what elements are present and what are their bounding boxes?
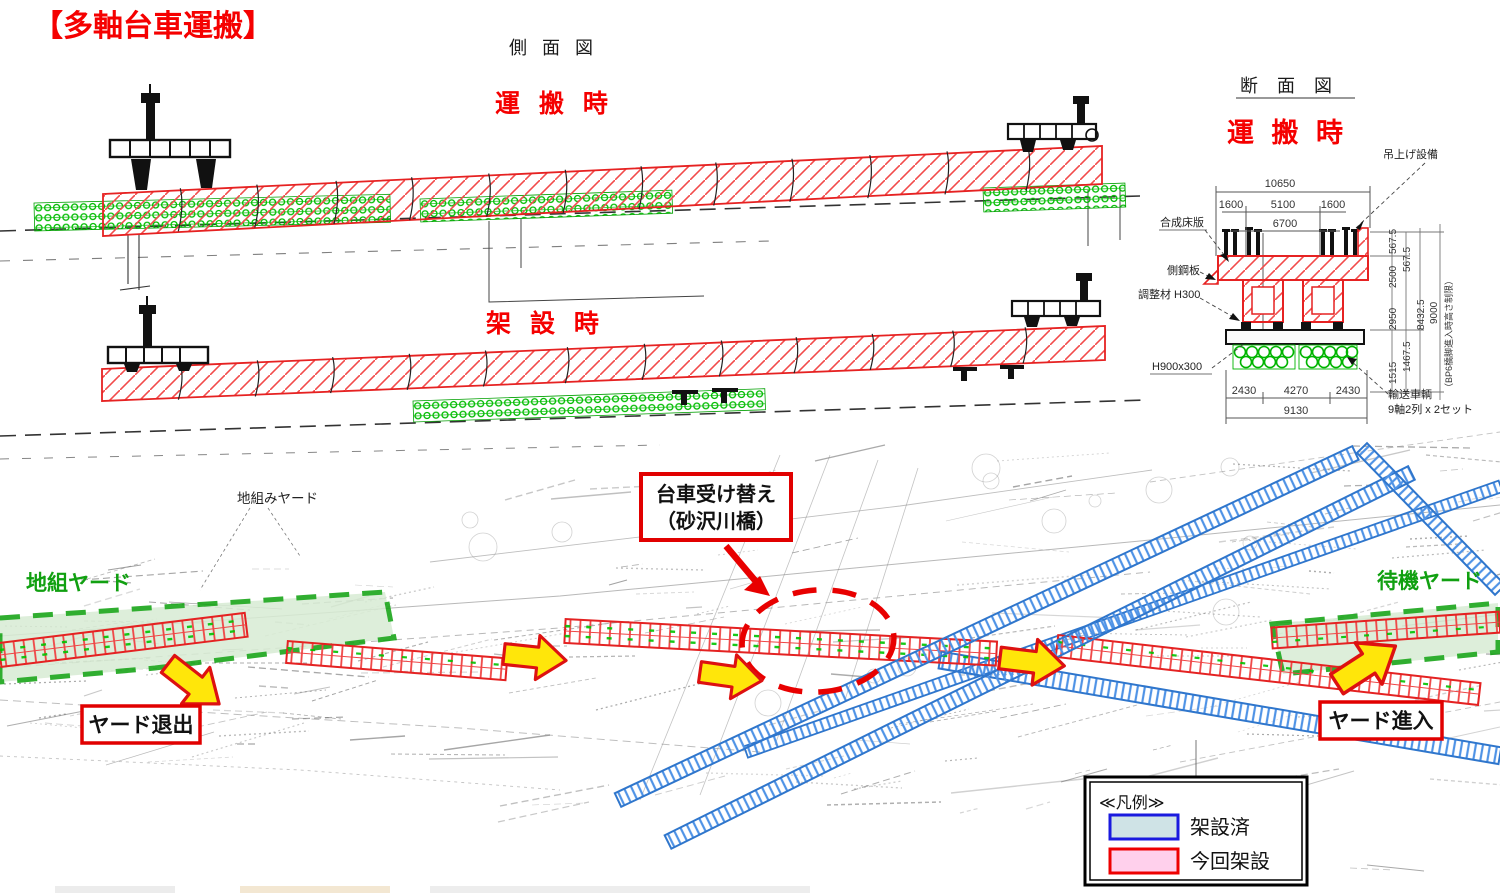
- dim-v-8432: 8432.5: [1416, 299, 1427, 330]
- map-scribble: [197, 712, 267, 727]
- plan-view-map: 地組みヤード 地組ヤード 待機ヤード ヤード退出 ヤード進入 台車受け替え （砂…: [0, 432, 1500, 893]
- dim-v-9000: 9000: [1429, 301, 1440, 324]
- map-scribble: [84, 690, 102, 696]
- erection-side-view: [0, 273, 1145, 459]
- yard-exit-callout: ヤード退出: [82, 706, 200, 743]
- map-scribble-circle: [755, 690, 781, 716]
- map-scribble: [355, 585, 393, 587]
- map-scribble: [785, 607, 862, 624]
- lifting-frame-right: [1012, 273, 1100, 327]
- current-girder-segment: [286, 641, 507, 680]
- map-scribble: [569, 656, 635, 657]
- map-scribble: [1247, 734, 1318, 736]
- pier-lines-left: [120, 234, 150, 290]
- map-scribble: [235, 690, 326, 698]
- dim-total-width: 10650: [1265, 178, 1296, 190]
- dim-v-1467: 1467.5: [1402, 341, 1413, 372]
- map-scribble: [444, 735, 550, 750]
- map-scribble: [841, 771, 915, 794]
- dim-v-567a: 567.5: [1388, 229, 1399, 254]
- dim-bottom-right: 2430: [1336, 385, 1360, 397]
- map-scribble: [1445, 727, 1500, 739]
- map-scribble: [686, 607, 702, 608]
- map-scribble: [350, 736, 405, 740]
- map-scribble: [500, 785, 609, 806]
- map-scribble: [951, 779, 1083, 793]
- map-scribble: [1030, 490, 1066, 501]
- label-lifting-equipment: 吊上げ設備: [1383, 147, 1438, 161]
- map-scribble: [945, 758, 978, 761]
- pier-lines-mid: [489, 219, 704, 302]
- dim-v-note: （BP6橋脚進入時高さ制限）: [1443, 276, 1454, 392]
- map-scribble: [1426, 455, 1500, 467]
- label-side-plate: 側鋼板: [1167, 263, 1200, 277]
- map-scribble: [213, 710, 284, 713]
- legend: ≪凡例≫ 架設済 今回架設: [1085, 777, 1307, 885]
- lifting-frame-right: [1008, 96, 1098, 152]
- label-composite-deck: 合成床版: [1160, 215, 1204, 229]
- assembly-yard-note-leader: [200, 508, 300, 590]
- deck-slab: [1218, 256, 1368, 280]
- map-scribble: [815, 445, 885, 461]
- map-scribble-circle: [1042, 509, 1066, 533]
- carrier-wheels: [1233, 345, 1358, 369]
- leader-carrier-arrow: [1347, 357, 1357, 365]
- map-scribble: [1309, 571, 1334, 573]
- girder-transport: [103, 146, 1102, 236]
- lifting-frame-left: [108, 296, 208, 372]
- map-scribble-circle: [1146, 477, 1172, 503]
- side-view-heading: 側 面 図: [509, 38, 598, 58]
- map-scribble: [1075, 770, 1090, 774]
- erection-state-label: 架 設 時: [486, 309, 605, 338]
- map-scribble: [1350, 868, 1394, 870]
- move-arrow-3: [697, 650, 765, 702]
- map-scribble: [609, 580, 627, 585]
- map-scribble-circle: [552, 522, 572, 542]
- cross-section-view: 10650 1600 5100 1600 6700 2430 4270 2430…: [1138, 147, 1473, 424]
- map-scribble: [1430, 779, 1500, 788]
- legend-current-swatch: [1110, 849, 1178, 873]
- map-scribble: [1153, 745, 1173, 750]
- map-scribble: [960, 808, 980, 813]
- shim-pads: [1241, 322, 1343, 330]
- map-scribble: [108, 565, 141, 570]
- ground-line-2: [0, 241, 770, 261]
- diagram-page: 【多軸台車運搬】 側 面 図 運 搬 時 架 設 時 断 面 図 運 搬 時: [0, 0, 1500, 893]
- cross-section-heading: 断 面 図: [1240, 76, 1339, 96]
- map-scribble: [827, 802, 941, 805]
- dim-bottom-left: 2430: [1232, 385, 1256, 397]
- dim-v-2950: 2950: [1388, 307, 1399, 330]
- label-shim: 調整材 H300: [1138, 287, 1200, 301]
- map-scribble: [962, 542, 1069, 552]
- deck-right-upstand: [1358, 228, 1368, 256]
- page-title: 【多軸台車運搬】: [33, 9, 273, 43]
- map-scribble: [1367, 865, 1424, 871]
- map-scribble: [1026, 802, 1050, 809]
- map-scribble-circle: [1089, 495, 1101, 507]
- label-beam: H900x300: [1152, 361, 1202, 373]
- bottom-cutoff-artifacts: [55, 886, 810, 893]
- map-scribble: [192, 723, 304, 757]
- yard-entry-label: ヤード進入: [1329, 710, 1434, 733]
- dim-bottom-total: 9130: [1284, 405, 1308, 417]
- map-scribble: [498, 802, 589, 822]
- map-scribble: [596, 681, 710, 710]
- platform-beam: [1226, 330, 1364, 344]
- label-carrier-2: 9軸2列 x 2セット: [1388, 402, 1473, 416]
- legend-title: ≪凡例≫: [1099, 794, 1165, 812]
- map-scribble: [621, 564, 643, 567]
- lifting-frame-left: [110, 84, 230, 190]
- map-scribble: [1440, 469, 1463, 471]
- map-scribble: [946, 497, 1053, 521]
- assembly-yard-label: 地組ヤード: [26, 571, 131, 595]
- dim-v-2500: 2500: [1388, 265, 1399, 288]
- map-scribble-circle: [1221, 458, 1239, 476]
- dim-v-1515: 1515: [1388, 361, 1399, 384]
- support-columns: [1243, 280, 1343, 322]
- label-carrier-1: 輸送車輌: [1388, 387, 1432, 401]
- map-scribble: [718, 550, 758, 555]
- assembly-yard-note: 地組みヤード: [237, 491, 318, 506]
- bogie-change-callout: 台車受け替え （砂沢川橋）: [641, 474, 791, 540]
- map-scribble-circle: [972, 454, 1000, 482]
- map-scribble: [997, 453, 1110, 461]
- cross-section-state-label: 運 搬 時: [1227, 117, 1348, 148]
- dim-inner: 6700: [1273, 218, 1297, 230]
- transport-state-label: 運 搬 時: [495, 89, 614, 118]
- map-scribble: [796, 782, 902, 788]
- legend-erected-swatch: [1110, 815, 1178, 839]
- map-scribble: [792, 538, 858, 553]
- map-scribble: [312, 680, 378, 701]
- map-scribble-circle: [1213, 599, 1239, 625]
- map-scribble: [834, 773, 852, 778]
- map-scribble: [1484, 708, 1500, 711]
- dim-center: 5100: [1271, 199, 1295, 211]
- dim-v-567b: 567.5: [1402, 247, 1413, 272]
- map-scribble: [1000, 704, 1066, 718]
- map-scribble: [1186, 620, 1272, 637]
- map-scribble: [1009, 493, 1116, 500]
- legend-current-label: 今回架設: [1190, 850, 1270, 873]
- dim-right: 1600: [1321, 199, 1345, 211]
- move-arrow-2: [502, 632, 569, 682]
- leader-shim-arrow: [1229, 313, 1240, 321]
- map-scribble: [148, 757, 233, 762]
- map-scribble: [294, 687, 330, 694]
- yard-entry-callout: ヤード進入: [1320, 702, 1442, 739]
- map-scribble: [505, 480, 575, 500]
- leader-lifting: [1356, 163, 1425, 228]
- legend-erected-label: 架設済: [1190, 816, 1250, 839]
- map-scribble-circle: [462, 512, 478, 528]
- yard-exit-label: ヤード退出: [89, 714, 194, 737]
- map-scribble: [259, 686, 288, 688]
- map-scribble: [429, 757, 558, 759]
- map-scribble: [391, 754, 505, 755]
- leader-beam: [1212, 344, 1244, 368]
- map-scribble: [1018, 705, 1137, 737]
- bogie-change-line2: （砂沢川橋）: [656, 509, 776, 533]
- dim-bottom-center: 4270: [1284, 385, 1308, 397]
- map-scribble: [1473, 512, 1500, 521]
- map-scribble: [1135, 625, 1200, 630]
- map-scribble: [509, 678, 596, 693]
- transport-diagram: 【多軸台車運搬】 側 面 図 運 搬 時 架 設 時 断 面 図 運 搬 時: [0, 0, 1500, 893]
- map-scribble: [4, 681, 86, 684]
- map-scribble: [636, 592, 694, 594]
- bogie-change-line1: 台車受け替え: [656, 482, 776, 506]
- map-scribble: [616, 568, 704, 570]
- dim-left: 1600: [1219, 199, 1243, 211]
- bogie-change-pointer-head: [744, 576, 770, 596]
- map-scribble: [551, 492, 631, 499]
- leader-shim: [1200, 298, 1235, 318]
- waiting-yard-label: 待機ヤード: [1377, 569, 1482, 593]
- ground-line-2: [0, 445, 660, 459]
